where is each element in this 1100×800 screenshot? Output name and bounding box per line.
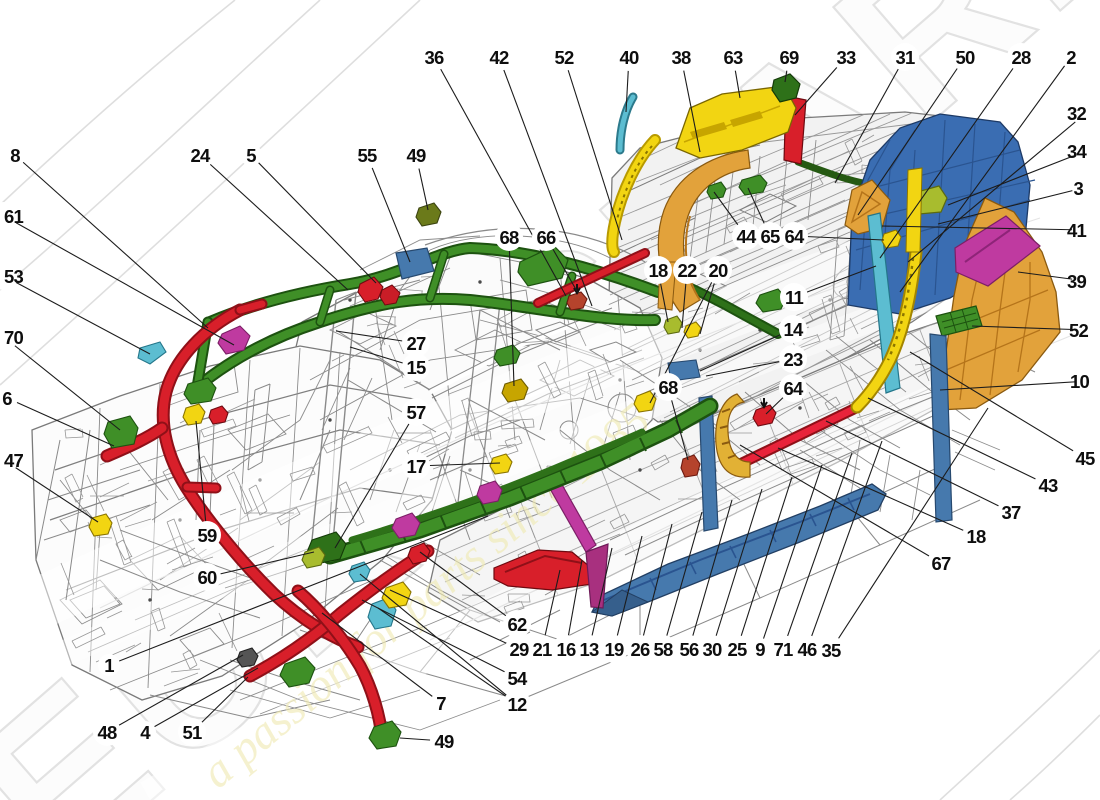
- svg-text:58: 58: [654, 639, 673, 660]
- svg-text:29: 29: [510, 639, 529, 660]
- svg-text:2: 2: [1066, 47, 1076, 68]
- svg-text:22: 22: [678, 260, 697, 281]
- svg-text:23: 23: [784, 349, 803, 370]
- svg-text:67: 67: [932, 553, 951, 574]
- svg-text:47: 47: [4, 450, 23, 471]
- svg-text:31: 31: [896, 47, 915, 68]
- svg-text:50: 50: [956, 47, 975, 68]
- svg-text:14: 14: [784, 319, 804, 340]
- svg-text:46: 46: [798, 639, 817, 660]
- svg-text:16: 16: [557, 639, 576, 660]
- svg-text:69: 69: [780, 47, 799, 68]
- svg-text:27: 27: [407, 333, 426, 354]
- svg-text:56: 56: [680, 639, 699, 660]
- svg-text:9: 9: [755, 639, 765, 660]
- svg-text:30: 30: [703, 639, 722, 660]
- svg-text:61: 61: [4, 206, 23, 227]
- svg-text:12: 12: [508, 694, 527, 715]
- svg-text:21: 21: [533, 639, 552, 660]
- svg-text:54: 54: [508, 668, 528, 689]
- svg-text:18: 18: [649, 260, 668, 281]
- svg-text:71: 71: [774, 639, 793, 660]
- svg-text:32: 32: [1067, 103, 1086, 124]
- svg-text:44: 44: [737, 226, 757, 247]
- svg-text:26: 26: [631, 639, 650, 660]
- svg-text:18: 18: [967, 526, 986, 547]
- svg-text:53: 53: [4, 266, 23, 287]
- svg-text:52: 52: [555, 47, 574, 68]
- svg-text:15: 15: [407, 357, 426, 378]
- svg-text:43: 43: [1039, 475, 1058, 496]
- svg-text:45: 45: [1076, 448, 1095, 469]
- svg-text:6: 6: [2, 388, 12, 409]
- svg-text:17: 17: [407, 456, 426, 477]
- svg-text:11: 11: [785, 287, 803, 308]
- svg-text:41: 41: [1067, 220, 1086, 241]
- svg-text:48: 48: [98, 722, 117, 743]
- svg-text:4: 4: [140, 722, 151, 743]
- svg-text:68: 68: [500, 227, 519, 248]
- svg-text:7: 7: [436, 693, 446, 714]
- svg-text:25: 25: [728, 639, 747, 660]
- svg-text:49: 49: [407, 145, 426, 166]
- svg-text:3: 3: [1074, 178, 1084, 199]
- svg-text:28: 28: [1012, 47, 1031, 68]
- svg-text:64: 64: [784, 378, 804, 399]
- svg-text:66: 66: [537, 227, 556, 248]
- svg-text:35: 35: [822, 640, 841, 661]
- svg-text:55: 55: [358, 145, 377, 166]
- svg-text:37: 37: [1002, 502, 1021, 523]
- svg-text:24: 24: [191, 145, 211, 166]
- svg-text:20: 20: [709, 260, 728, 281]
- svg-text:19: 19: [605, 639, 624, 660]
- svg-text:13: 13: [580, 639, 599, 660]
- svg-text:49: 49: [435, 731, 454, 752]
- svg-text:62: 62: [508, 614, 527, 635]
- svg-text:40: 40: [620, 47, 639, 68]
- svg-text:5: 5: [246, 145, 256, 166]
- svg-text:60: 60: [198, 567, 217, 588]
- svg-text:70: 70: [4, 327, 23, 348]
- svg-text:8: 8: [10, 145, 20, 166]
- svg-text:63: 63: [724, 47, 743, 68]
- svg-text:64: 64: [785, 226, 805, 247]
- svg-text:34: 34: [1067, 141, 1087, 162]
- svg-text:59: 59: [198, 525, 217, 546]
- svg-text:33: 33: [837, 47, 856, 68]
- svg-text:1: 1: [104, 655, 114, 676]
- svg-text:39: 39: [1067, 271, 1086, 292]
- svg-text:38: 38: [672, 47, 691, 68]
- svg-text:36: 36: [425, 47, 444, 68]
- svg-text:10: 10: [1070, 371, 1089, 392]
- svg-text:51: 51: [183, 722, 202, 743]
- svg-text:57: 57: [407, 402, 426, 423]
- svg-text:65: 65: [761, 226, 780, 247]
- svg-text:52: 52: [1069, 320, 1088, 341]
- svg-text:68: 68: [659, 377, 678, 398]
- svg-text:42: 42: [490, 47, 509, 68]
